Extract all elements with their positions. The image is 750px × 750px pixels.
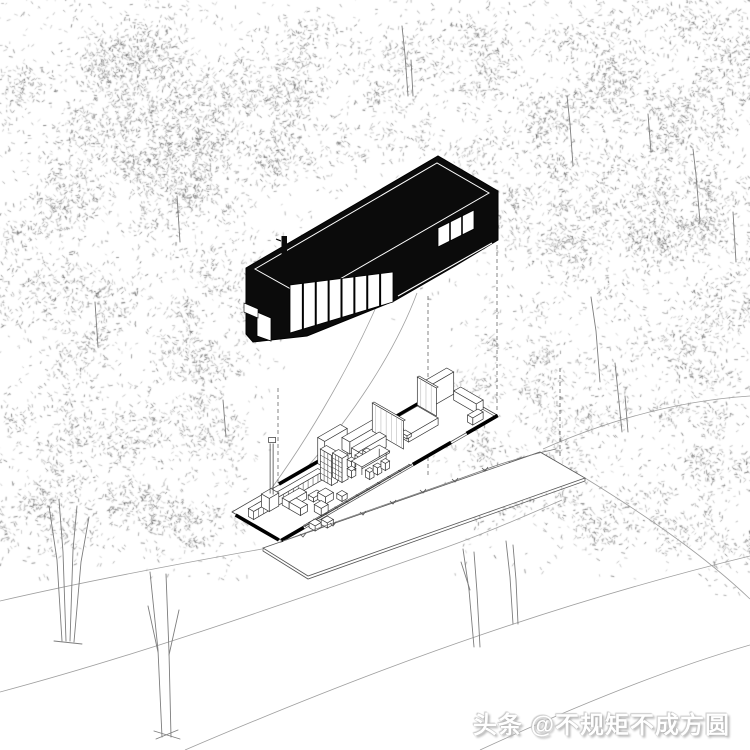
architectural-axonometric-scene: 头条 @不规矩不成方圆 <box>0 0 750 750</box>
watermark: 头条 @不规矩不成方圆 <box>473 705 730 740</box>
house-volume <box>244 156 498 342</box>
axonometric-drawing <box>0 0 750 750</box>
tree-trunks <box>49 26 736 739</box>
